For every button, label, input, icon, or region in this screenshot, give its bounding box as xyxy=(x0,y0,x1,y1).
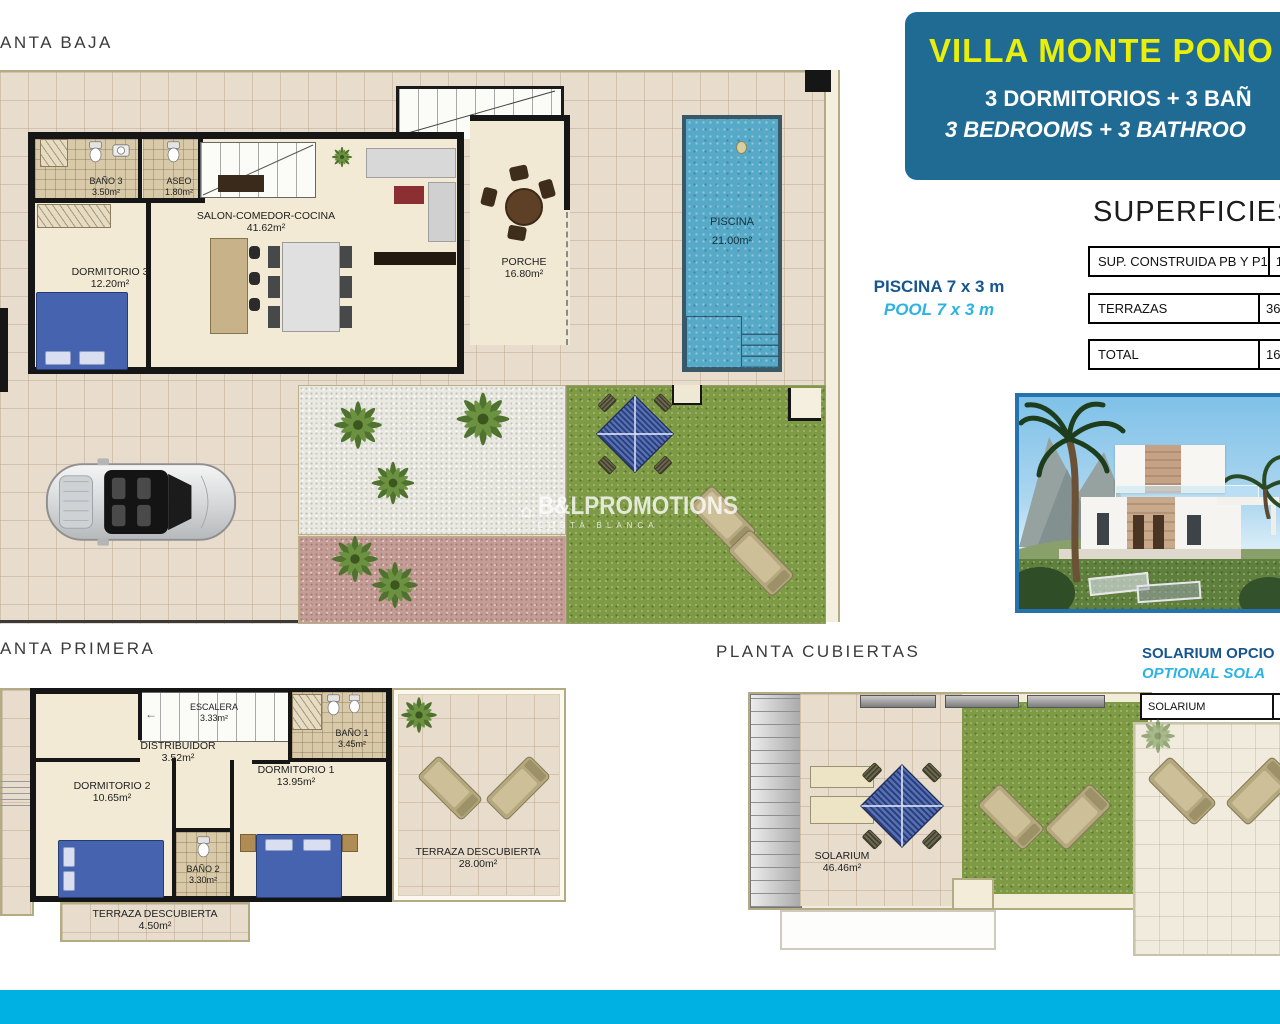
boundary-wall xyxy=(0,308,8,392)
plant xyxy=(330,145,354,169)
pillow xyxy=(63,847,75,867)
room-area: 10.65m² xyxy=(74,792,151,804)
room-area: 3.50m² xyxy=(89,187,122,198)
solarium-note-es: SOLARIUM OPCIO xyxy=(1142,645,1280,662)
toilet xyxy=(88,141,103,163)
plant xyxy=(368,558,422,612)
chair xyxy=(340,246,352,268)
optional-solarium-plan: SOLARIUM xyxy=(1133,690,1280,956)
wall xyxy=(36,758,140,762)
room-label: BAÑO 2 3.30m² xyxy=(186,864,219,885)
plot-edge xyxy=(824,70,840,622)
toilet xyxy=(196,836,211,858)
room-name: BAÑO 2 xyxy=(186,864,219,875)
paras­ol xyxy=(858,762,946,850)
room-label: DORMITORIO 1 13.95m² xyxy=(258,764,335,789)
plant xyxy=(330,397,386,453)
room-area: 13.95m² xyxy=(258,776,335,788)
stool xyxy=(249,298,260,311)
room-name: ESCALERA xyxy=(190,702,238,713)
room-name: TERRAZA DESCUBIERTA xyxy=(92,908,217,920)
stool xyxy=(249,246,260,259)
superficies-title: SUPERFICIES xyxy=(1093,196,1280,229)
room-name: PORCHE xyxy=(502,256,547,268)
bed xyxy=(58,840,164,898)
stair-arrow-icon: ← xyxy=(145,707,157,721)
room-label: PORCHE 16.80m² xyxy=(502,256,547,281)
shower xyxy=(292,694,322,730)
chair xyxy=(340,276,352,298)
bed xyxy=(256,834,342,898)
room-label: BAÑO 1 3.45m² xyxy=(335,728,368,749)
solarium-row-value-cell xyxy=(1272,695,1280,718)
room-area: 3.45m² xyxy=(335,739,368,750)
room-name: SOLARIUM xyxy=(815,850,870,862)
room-area: 21.00m² xyxy=(710,232,754,251)
rug xyxy=(394,186,424,204)
sofa xyxy=(428,182,456,242)
pillow xyxy=(303,839,331,851)
toilet xyxy=(166,141,181,163)
chair xyxy=(268,246,280,268)
brand-subtitle: COSTA BLANCA xyxy=(538,521,760,530)
palm-tree xyxy=(1019,397,1139,587)
pool-step-lines xyxy=(742,328,778,368)
plant xyxy=(398,694,440,736)
room-name: SALON-COMEDOR-COCINA xyxy=(197,210,335,222)
shower xyxy=(40,139,68,167)
sink xyxy=(112,144,130,157)
header-subtitle-es: 3 DORMITORIOS + 3 BAÑ xyxy=(985,86,1280,112)
solarium-row-label: SOLARIUM xyxy=(1142,701,1272,713)
kitchen-island xyxy=(210,238,248,334)
room-name: DORMITORIO 3 xyxy=(72,266,149,278)
wardrobe xyxy=(37,204,111,228)
garden-structure xyxy=(788,388,821,421)
tv-unit xyxy=(374,252,456,265)
room-label: TERRAZA DESCUBIERTA 28.00m² xyxy=(415,846,540,871)
room-area: 16.80m² xyxy=(502,268,547,280)
room-label: ASEO 1.80m² xyxy=(165,176,193,197)
brand-name: B&LPROMOTIONS xyxy=(538,494,738,519)
chair xyxy=(507,225,527,242)
brochure-page: ANTA BAJA ANTA PRIMERA PLANTA CUBIERTAS … xyxy=(0,0,1280,1024)
header-banner: VILLA MONTE PONO 3 DORMITORIOS + 3 BAÑ 3… xyxy=(905,12,1280,180)
pillow xyxy=(63,871,75,891)
superficies-row-label: SUP. CONSTRUIDA PB Y P1 xyxy=(1090,254,1268,269)
porch-table xyxy=(505,188,543,226)
room-label: SALON-COMEDOR-COCINA 41.62m² xyxy=(197,210,335,235)
solarium-note-en: OPTIONAL SOLA xyxy=(1142,665,1280,682)
superficies-row: SUP. CONSTRUIDA PB Y P1 129 xyxy=(1088,246,1280,277)
planta-cubiertas-plan: SOLARIUM 46.46m² xyxy=(740,688,1170,960)
room-label: TERRAZA DESCUBIERTA 4.50m² xyxy=(92,908,217,933)
room-area: 3.33m² xyxy=(190,713,238,724)
watermark-text: B&LPROMOTIONS COSTA BLANCA xyxy=(538,494,760,530)
palm-tree xyxy=(1225,449,1280,519)
roof-beam xyxy=(1027,695,1105,708)
bed xyxy=(36,292,128,370)
house-icon xyxy=(520,496,533,528)
bidet xyxy=(348,694,361,714)
room-area: 41.62m² xyxy=(197,222,335,234)
wall xyxy=(288,758,388,762)
pillow xyxy=(79,351,105,365)
toilet xyxy=(326,694,341,716)
room-label: SOLARIUM 46.46m² xyxy=(815,850,870,875)
planta-primera-title: ANTA PRIMERA xyxy=(0,639,155,659)
superficies-row-value: 165 xyxy=(1258,341,1280,368)
superficies-row: TOTAL 165 xyxy=(1088,339,1280,370)
porch-open-edge xyxy=(566,212,568,345)
roof-beam xyxy=(945,695,1019,708)
superficies-row: TERRAZAS 36, xyxy=(1088,293,1280,324)
boundary-wall xyxy=(805,70,831,92)
room-label: DORMITORIO 2 10.65m² xyxy=(74,780,151,805)
pool-steps xyxy=(686,316,742,368)
villa-photo xyxy=(1015,393,1280,613)
plant xyxy=(452,388,514,450)
exterior-stairs xyxy=(0,780,30,806)
room-name: DISTRIBUIDOR xyxy=(140,740,215,752)
header-subtitle-en: 3 BEDROOMS + 3 BATHROO xyxy=(945,117,1280,143)
room-label: DORMITORIO 3 12.20m² xyxy=(72,266,149,291)
wall xyxy=(33,198,205,203)
chair xyxy=(268,276,280,298)
pool-size-note-es: PISCINA 7 x 3 m xyxy=(863,277,1015,297)
planta-baja-title: ANTA BAJA xyxy=(0,33,113,53)
room-label: BAÑO 3 3.50m² xyxy=(89,176,122,197)
plant xyxy=(368,458,418,508)
sofa xyxy=(366,148,456,178)
stool xyxy=(249,272,260,285)
optional-solarium-tiles xyxy=(1133,722,1280,956)
villa-title: VILLA MONTE PONO xyxy=(929,32,1280,70)
room-area: 3.30m² xyxy=(186,875,219,886)
room-label: PISCINA 21.00m² xyxy=(710,213,754,250)
console xyxy=(218,175,264,192)
dining-table xyxy=(282,242,340,332)
lawn-notch xyxy=(672,385,702,405)
room-area: 12.20m² xyxy=(72,278,149,290)
room-label: ESCALERA 3.33m² xyxy=(190,702,238,723)
room-label: DISTRIBUIDOR 3.52m² xyxy=(140,740,215,765)
superficies-row-value: 36, xyxy=(1258,295,1280,322)
room-name: TERRAZA DESCUBIERTA xyxy=(415,846,540,858)
roof-stairs xyxy=(750,694,802,908)
superficies-row-label: TERRAZAS xyxy=(1090,301,1258,316)
roof-beam xyxy=(860,695,936,708)
room-name: DORMITORIO 2 xyxy=(74,780,151,792)
nightstand xyxy=(240,834,256,852)
chair xyxy=(268,306,280,328)
pillow xyxy=(265,839,293,851)
room-area: 28.00m² xyxy=(415,858,540,870)
room-name: DORMITORIO 1 xyxy=(258,764,335,776)
room-name: PISCINA xyxy=(710,213,754,232)
watermark-logo: B&LPROMOTIONS COSTA BLANCA xyxy=(520,486,760,538)
chair xyxy=(340,306,352,328)
wall xyxy=(138,136,142,200)
window xyxy=(1187,515,1201,545)
roof-notch xyxy=(952,878,994,910)
wall xyxy=(138,692,142,740)
pool-size-note-en: POOL 7 x 3 m xyxy=(863,300,1015,320)
room-area: 1.80m² xyxy=(165,187,193,198)
pool-ladder xyxy=(736,141,747,154)
lower-roof-outline xyxy=(780,910,996,950)
planta-primera-plan: ← ESCALERA xyxy=(0,680,640,955)
room-area: 3.52m² xyxy=(140,752,215,764)
footer-bar xyxy=(0,990,1280,1024)
nightstand xyxy=(342,834,358,852)
planta-baja-plan: BAÑO 3 3.50m² ASEO 1.80m² SALON-COMEDOR-… xyxy=(0,70,838,628)
superficies-row-value: 129 xyxy=(1268,248,1280,275)
car xyxy=(44,456,238,548)
plant xyxy=(1138,716,1178,756)
pillow xyxy=(45,351,71,365)
room-area: 46.46m² xyxy=(815,862,870,874)
superficies-row-label: TOTAL xyxy=(1090,347,1258,362)
parasol xyxy=(594,393,676,475)
room-name: BAÑO 3 xyxy=(89,176,122,187)
room-name: BAÑO 1 xyxy=(335,728,368,739)
planta-cubiertas-title: PLANTA CUBIERTAS xyxy=(716,642,920,662)
room-area: 4.50m² xyxy=(92,920,217,932)
wall xyxy=(564,115,570,210)
room-name: ASEO xyxy=(165,176,193,187)
